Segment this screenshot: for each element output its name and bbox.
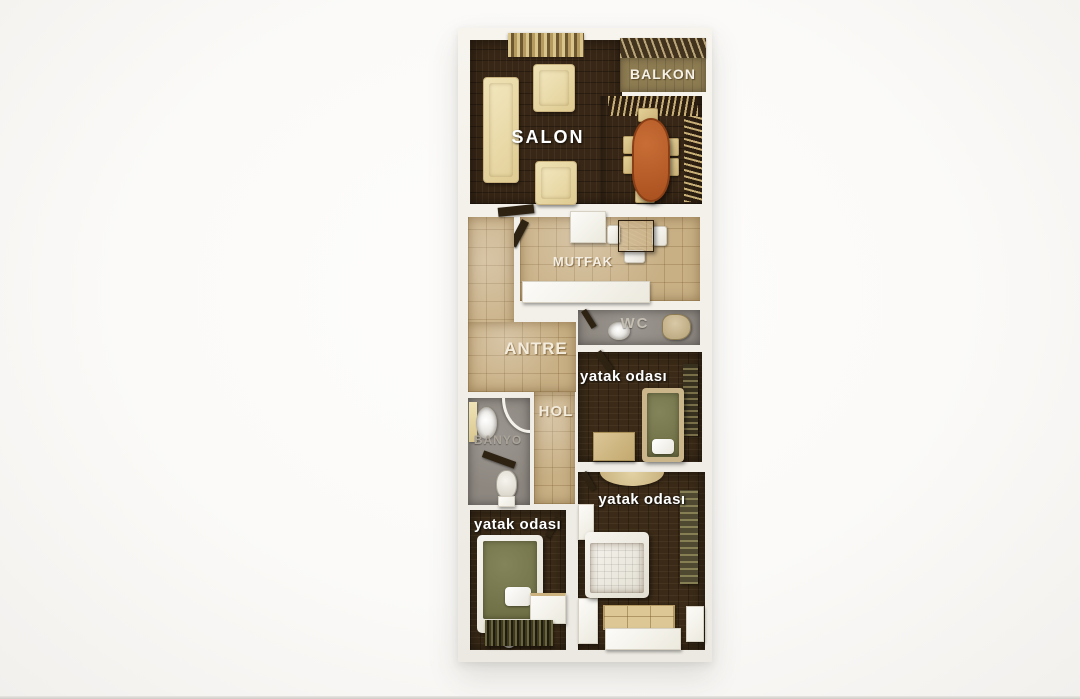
banyo-toilet-tank	[498, 496, 515, 507]
dining-curtain-right	[684, 116, 702, 202]
bedroom1-pillow	[652, 439, 674, 454]
bedroom2-nightstand-bottom	[578, 598, 598, 644]
floor-plan: BALKON SALON MUTFAK ANTRE HOL WC BANYO	[458, 28, 712, 662]
bedroom2-bed	[585, 532, 649, 598]
room-label-bedroom3: yatak odası	[474, 517, 560, 532]
bedroom2-chest-quilt-top	[603, 605, 675, 630]
bedroom3-pillow	[505, 587, 531, 606]
bedroom3-bed-cover	[483, 541, 537, 619]
bedroom2-chest-front	[605, 628, 681, 650]
armchair-cushion	[539, 70, 569, 106]
banyo-toilet-bowl	[496, 470, 517, 499]
render-canvas: { "scene": { "type": "3d-apartment-floor…	[0, 0, 1080, 699]
kitchen-counter-top	[570, 211, 606, 243]
bedroom1-wardrobe	[683, 364, 698, 436]
room-label-wc: WC	[618, 316, 652, 331]
room-label-bedroom1: yatak odası	[580, 369, 664, 384]
salon-window-curtain	[508, 33, 584, 57]
bedroom1-dresser	[593, 432, 635, 461]
kitchen-table	[618, 220, 654, 252]
bedroom2-side-unit	[686, 606, 704, 642]
entry-door-leaf	[498, 204, 535, 217]
room-label-mutfak: MUTFAK	[548, 255, 618, 268]
room-label-balkon: BALKON	[624, 67, 702, 81]
kitchen-counter-bottom	[522, 281, 650, 303]
room-label-antre: ANTRE	[498, 340, 574, 357]
kitchen-chair	[652, 226, 667, 246]
bedroom1-bed	[642, 388, 684, 462]
balcony-railing	[620, 38, 706, 58]
room-label-hol: HOL	[536, 404, 576, 419]
room-label-bedroom2: yatak odası	[598, 492, 686, 507]
bedroom3-rug	[485, 620, 553, 646]
dining-table	[632, 118, 670, 202]
armchair-bottom	[535, 161, 577, 205]
armchair-cushion	[541, 167, 571, 199]
bedroom2-bed-cover	[590, 543, 644, 593]
room-label-salon: SALON	[498, 128, 598, 146]
room-label-banyo: BANYO	[472, 434, 524, 446]
wc-toilet	[662, 314, 691, 340]
armchair-top	[533, 64, 575, 112]
